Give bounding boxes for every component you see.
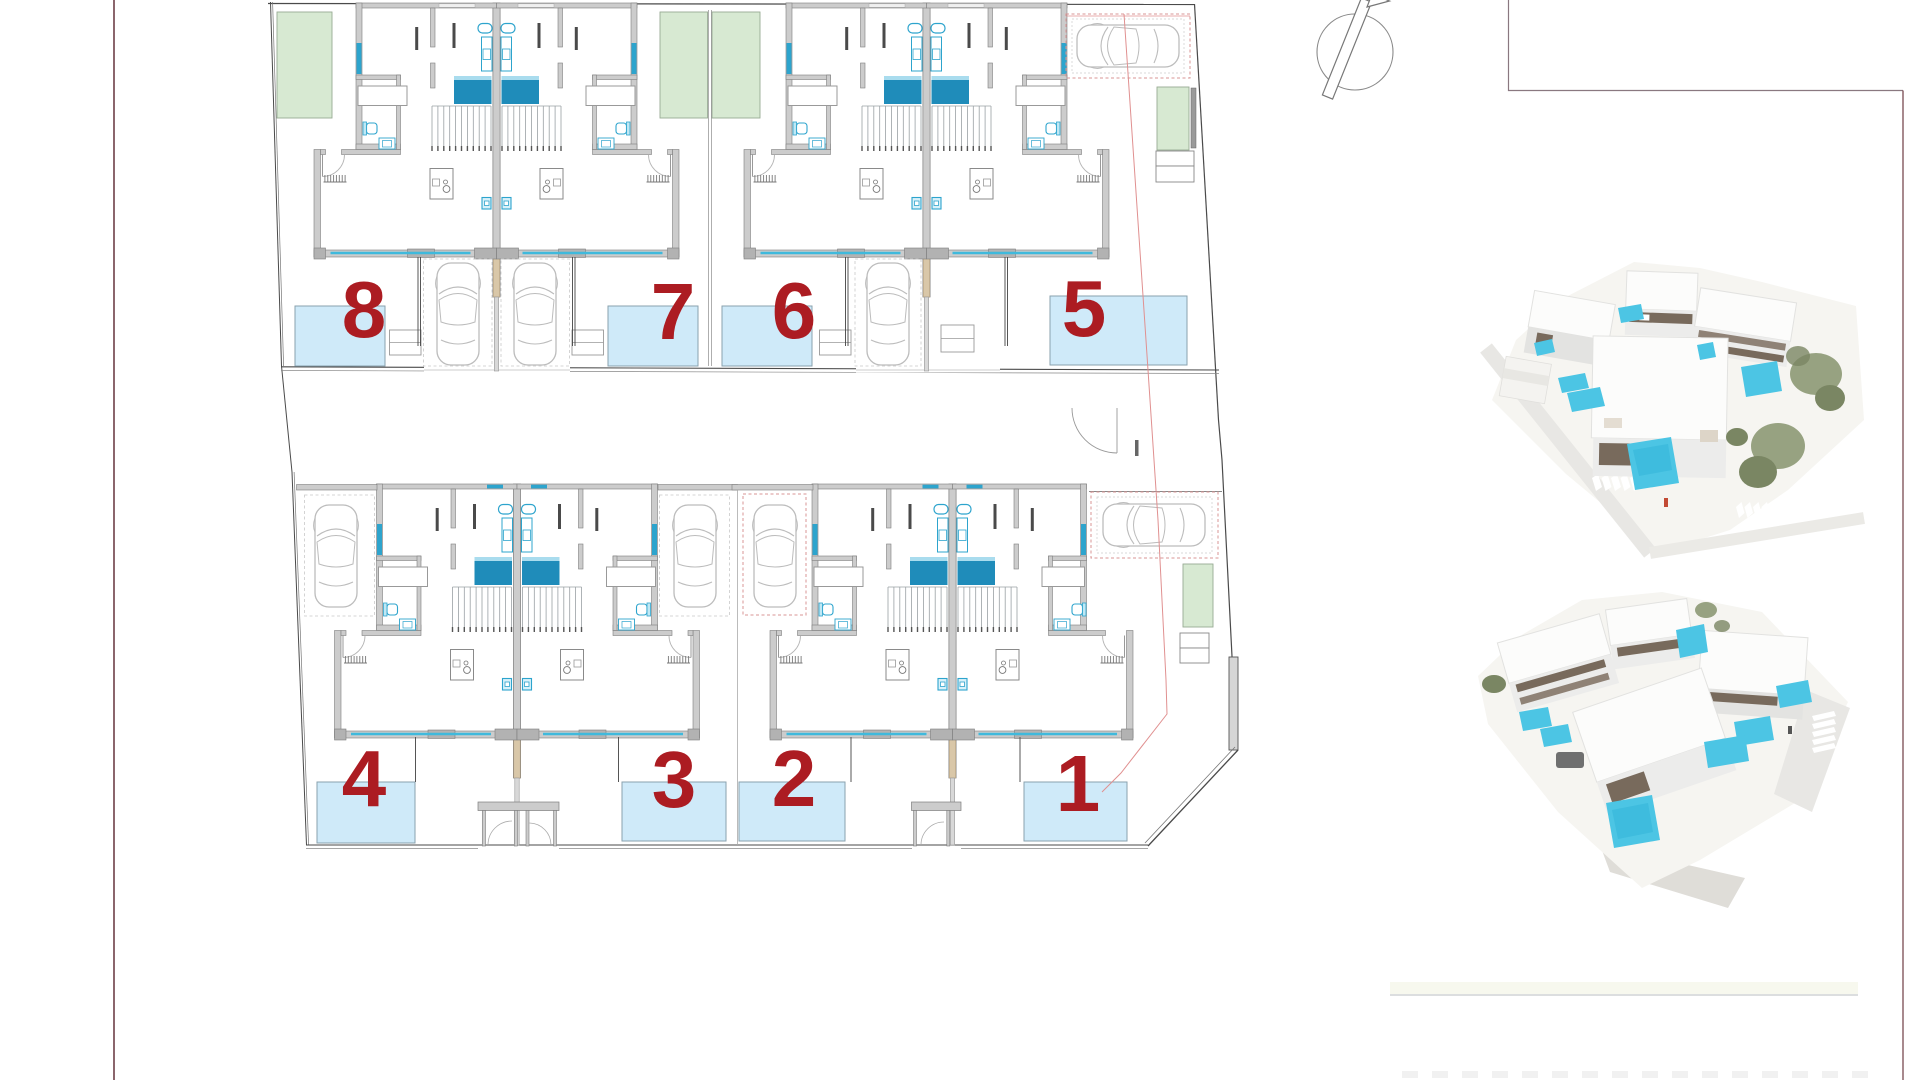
svg-text:6: 6 (772, 266, 817, 355)
svg-text:2: 2 (772, 734, 817, 823)
svg-text:3: 3 (652, 735, 697, 824)
svg-text:5: 5 (1062, 264, 1107, 353)
svg-text:4: 4 (342, 734, 387, 823)
svg-text:7: 7 (651, 267, 696, 356)
svg-text:8: 8 (342, 265, 387, 354)
svg-text:1: 1 (1056, 739, 1101, 828)
